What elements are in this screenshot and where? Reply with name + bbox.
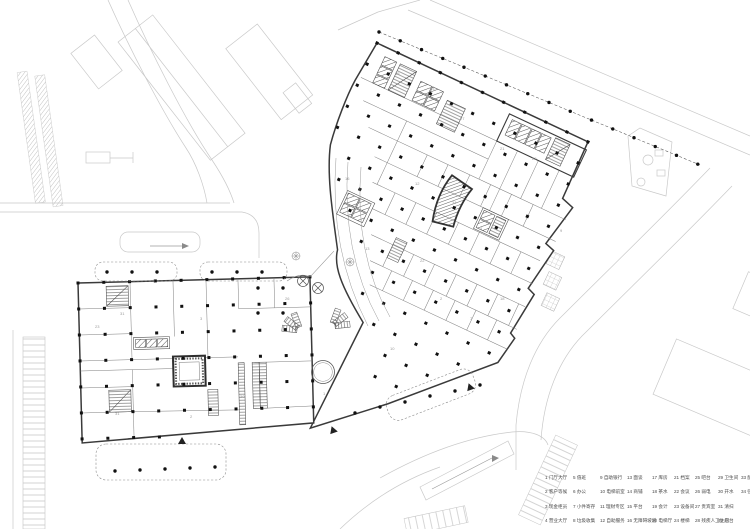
column-dot bbox=[258, 329, 261, 332]
column-dot bbox=[105, 270, 108, 273]
column-dot bbox=[158, 435, 161, 438]
column-dot bbox=[207, 356, 210, 359]
column-dot bbox=[79, 359, 82, 362]
column-dot bbox=[286, 406, 289, 409]
column-dot bbox=[283, 302, 286, 305]
circle-feature bbox=[312, 361, 335, 384]
column-dot bbox=[696, 162, 699, 165]
column-dot bbox=[377, 30, 380, 33]
column-dot bbox=[154, 305, 157, 308]
column-dot bbox=[632, 136, 635, 139]
column-dot bbox=[138, 468, 141, 471]
column-dot bbox=[233, 355, 236, 358]
column-dot bbox=[180, 279, 183, 282]
column-dot bbox=[183, 409, 186, 412]
room-number-label: 21 bbox=[500, 146, 505, 151]
context-building-nw bbox=[118, 15, 245, 160]
column-dot bbox=[106, 411, 109, 414]
column-dot bbox=[259, 355, 262, 358]
column-dot bbox=[213, 465, 216, 468]
room-number-label: 26 bbox=[285, 296, 290, 301]
column-dot bbox=[207, 330, 210, 333]
entrance-marker bbox=[465, 382, 475, 391]
room-number-label: 31 bbox=[115, 411, 120, 416]
column-dot bbox=[106, 437, 109, 440]
column-dot bbox=[104, 359, 107, 362]
column-dot bbox=[163, 467, 166, 470]
room-number-label: 29 bbox=[532, 156, 537, 161]
room-number-label: 23 bbox=[95, 324, 100, 329]
parking-stalls-diagonal bbox=[519, 435, 578, 525]
room-number-label: 12 bbox=[415, 181, 420, 186]
column-dot bbox=[310, 327, 313, 330]
entrance-marker bbox=[328, 425, 338, 434]
column-dot bbox=[312, 405, 315, 408]
column-dot bbox=[76, 281, 79, 284]
floor-plan-page: 35 33 27 21 12 34 4 29 9 22 2 7 13 16 10… bbox=[0, 0, 750, 529]
column-dot bbox=[130, 358, 133, 361]
parking-stalls-bottom bbox=[404, 506, 468, 529]
road-kerb bbox=[242, 212, 259, 258]
column-dot bbox=[77, 307, 80, 310]
room-number-label: 9 bbox=[560, 228, 563, 233]
column-dot bbox=[235, 270, 238, 273]
column-dot bbox=[311, 379, 314, 382]
column-dot bbox=[675, 154, 678, 157]
room-number-label: 13 bbox=[365, 246, 370, 251]
column-dot bbox=[79, 385, 82, 388]
column-dot bbox=[260, 407, 263, 410]
column-dot bbox=[256, 311, 259, 314]
column-dot bbox=[181, 331, 184, 334]
column-dot bbox=[260, 270, 263, 273]
driveway bbox=[120, 232, 200, 252]
room-number-label: 27 bbox=[460, 116, 465, 121]
column-dot bbox=[232, 303, 235, 306]
column-dot bbox=[420, 48, 423, 51]
column-dot bbox=[378, 405, 381, 408]
column-dot bbox=[208, 382, 211, 385]
column-dot bbox=[182, 357, 185, 360]
column-dot bbox=[234, 407, 237, 410]
column-dot bbox=[156, 383, 159, 386]
column-dot bbox=[80, 411, 83, 414]
column-dot bbox=[129, 332, 132, 335]
room-number-label: 31 bbox=[120, 311, 125, 316]
column-dot bbox=[283, 276, 286, 279]
floor-plan-canvas: 35 33 27 21 12 34 4 29 9 22 2 7 13 16 10… bbox=[0, 0, 750, 529]
column-dot bbox=[257, 277, 260, 280]
column-dot bbox=[484, 74, 487, 77]
column-dot bbox=[210, 270, 213, 273]
column-dot bbox=[285, 380, 288, 383]
column-dot bbox=[78, 333, 81, 336]
column-dot bbox=[309, 301, 312, 304]
column-dot bbox=[104, 333, 107, 336]
column-dot bbox=[403, 400, 406, 403]
column-dot bbox=[256, 286, 259, 289]
entrance-marker bbox=[178, 437, 186, 444]
room-number-label: 16 bbox=[345, 176, 350, 181]
column-dot bbox=[232, 329, 235, 332]
column-dot bbox=[590, 118, 593, 121]
road-kerb bbox=[541, 186, 732, 440]
column-dot bbox=[478, 383, 481, 386]
column-dot bbox=[234, 381, 237, 384]
column-dot bbox=[103, 307, 106, 310]
column-dot bbox=[113, 469, 116, 472]
context-building-se bbox=[653, 256, 750, 445]
column-dot bbox=[611, 127, 614, 130]
room-number-label: 18 bbox=[500, 296, 505, 301]
road-kerb bbox=[380, 432, 548, 478]
column-dot bbox=[281, 286, 284, 289]
context-building-n bbox=[226, 24, 317, 124]
column-dot bbox=[231, 277, 234, 280]
column-dot bbox=[547, 101, 550, 104]
column-dot bbox=[281, 311, 284, 314]
column-dot bbox=[155, 270, 158, 273]
room-number-label: 22 bbox=[420, 258, 425, 263]
column-dot bbox=[128, 280, 131, 283]
column-dot bbox=[131, 384, 134, 387]
lower-wing bbox=[76, 275, 315, 443]
column-dot bbox=[130, 270, 133, 273]
context-building-w bbox=[71, 35, 122, 89]
parking-row bbox=[23, 337, 45, 529]
column-dot bbox=[132, 436, 135, 439]
room-number-label: 30 bbox=[240, 394, 245, 399]
column-dot bbox=[105, 385, 108, 388]
planting-strips bbox=[17, 69, 63, 209]
column-dot bbox=[155, 331, 158, 334]
column-dot bbox=[182, 383, 185, 386]
column-dot bbox=[129, 306, 132, 309]
room-number-label: 1 bbox=[323, 391, 326, 396]
column-dot bbox=[180, 305, 183, 308]
fan-stair bbox=[330, 308, 350, 329]
room-number-label: 33 bbox=[430, 86, 435, 91]
column-dot bbox=[258, 303, 261, 306]
flow-arrow bbox=[492, 455, 499, 462]
column-dot bbox=[188, 466, 191, 469]
column-dot bbox=[441, 57, 444, 60]
column-dot bbox=[260, 381, 263, 384]
column-dot bbox=[399, 39, 402, 42]
room-number-label: 10 bbox=[390, 346, 395, 351]
column-dot bbox=[209, 408, 212, 411]
column-dot bbox=[462, 66, 465, 69]
column-dot bbox=[505, 83, 508, 86]
column-dot bbox=[206, 304, 209, 307]
room-number-label: 34 bbox=[452, 200, 457, 205]
atrium-square bbox=[173, 356, 206, 387]
column-dot bbox=[428, 394, 431, 397]
column-dot bbox=[353, 411, 356, 414]
column-dot bbox=[285, 354, 288, 357]
driveway bbox=[420, 441, 514, 500]
column-dot bbox=[131, 410, 134, 413]
column-dot bbox=[654, 145, 657, 148]
column-dot bbox=[453, 389, 456, 392]
road-kerb bbox=[128, 0, 234, 203]
column-dot bbox=[526, 92, 529, 95]
context-structure bbox=[86, 152, 110, 163]
room-number-label: 35 bbox=[395, 71, 400, 76]
column-dot bbox=[156, 357, 159, 360]
column-dot bbox=[81, 437, 84, 440]
column-dot bbox=[157, 409, 160, 412]
column-dot bbox=[310, 353, 313, 356]
flow-arrow bbox=[182, 243, 189, 249]
column-dot bbox=[569, 110, 572, 113]
